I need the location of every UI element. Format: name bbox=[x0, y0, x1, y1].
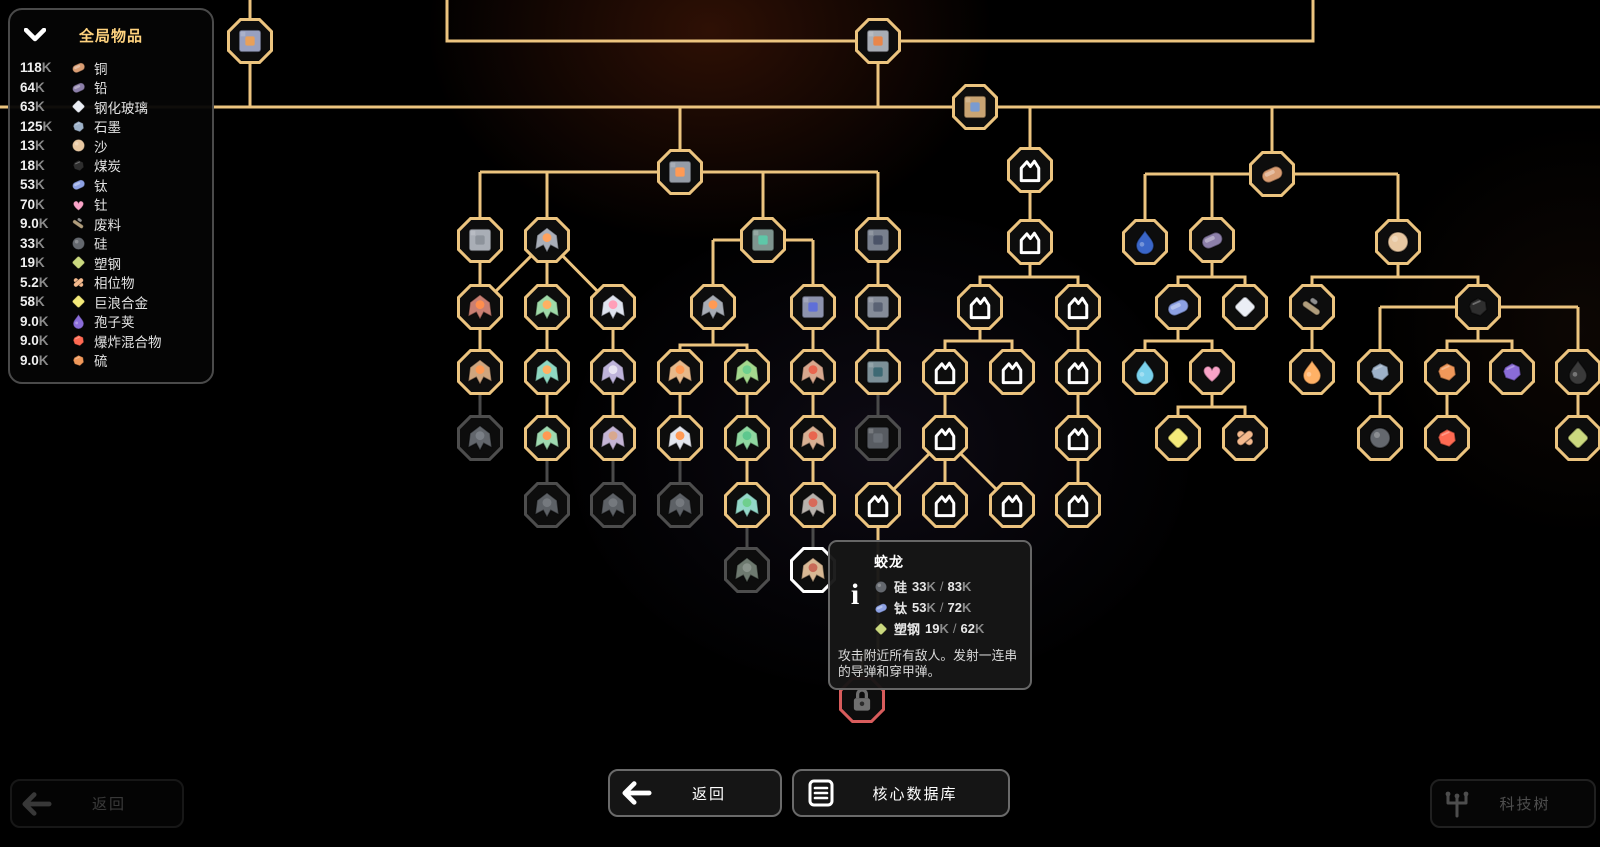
node-icon-block-icon bbox=[793, 287, 833, 327]
tech-node-h4[interactable] bbox=[1055, 482, 1101, 528]
item-amount: 64K bbox=[20, 80, 66, 95]
requirement-circle-icon bbox=[872, 579, 890, 595]
node-icon-item-capsule-icon bbox=[1192, 220, 1232, 260]
tech-tree-icon bbox=[1432, 789, 1482, 819]
node-icon-item-rock-icon bbox=[1427, 418, 1467, 458]
node-icon-sector-icon bbox=[1010, 222, 1050, 262]
item-circle-icon bbox=[68, 137, 88, 154]
item-diamond-icon bbox=[68, 254, 88, 271]
item-name: 钢化玻璃 bbox=[94, 97, 148, 117]
global-items-panel: 全局物品 118K铜64K铅63K钢化玻璃125K石墨13K沙18K煤炭53K钛… bbox=[8, 8, 214, 384]
node-icon-block-icon bbox=[858, 21, 898, 61]
global-item-row: 9.0K孢子荚 bbox=[10, 312, 212, 332]
item-rock-icon bbox=[68, 157, 88, 174]
tech-node-h3[interactable] bbox=[989, 482, 1035, 528]
item-amount: 9.0K bbox=[20, 333, 66, 348]
tech-node-oil[interactable] bbox=[1555, 349, 1600, 395]
tech-node-nova[interactable] bbox=[524, 284, 570, 330]
node-icon-block-icon bbox=[858, 220, 898, 260]
node-icon-item-drop-icon bbox=[1292, 352, 1332, 392]
item-amount: 58K bbox=[20, 294, 66, 309]
tech-node-h6[interactable] bbox=[1007, 219, 1053, 265]
item-capsule-icon bbox=[68, 176, 88, 193]
item-drop-icon bbox=[68, 313, 88, 330]
tech-node-u22[interactable] bbox=[457, 415, 503, 461]
global-item-row: 33K硅 bbox=[10, 234, 212, 254]
node-icon-block-icon bbox=[955, 87, 995, 127]
tech-node-h10[interactable] bbox=[989, 349, 1035, 395]
tech-node-bA[interactable] bbox=[855, 217, 901, 263]
tech-node-metaglass[interactable] bbox=[1222, 284, 1268, 330]
tech-node-bB[interactable] bbox=[855, 284, 901, 330]
item-name: 废料 bbox=[94, 214, 121, 234]
book-list-icon bbox=[794, 779, 848, 807]
tech-node-u33[interactable] bbox=[724, 547, 770, 593]
item-diamond-icon bbox=[68, 293, 88, 310]
node-icon-unit-icon bbox=[527, 418, 567, 458]
item-rock-icon bbox=[68, 332, 88, 349]
tech-node-sand[interactable] bbox=[1375, 219, 1421, 265]
tech-node-plastanium[interactable] bbox=[1555, 415, 1600, 461]
tech-node-h9[interactable] bbox=[922, 349, 968, 395]
tech-node-u26[interactable] bbox=[724, 415, 770, 461]
tooltip-description: 攻击附近所有敌人。发射一连串的导弹和穿甲弹。 bbox=[838, 648, 1022, 680]
item-name: 钍 bbox=[94, 194, 108, 214]
back-button-faded[interactable]: 返回 bbox=[10, 779, 184, 828]
node-icon-item-diamond-icon bbox=[1158, 418, 1198, 458]
item-amount: 13K bbox=[20, 138, 66, 153]
node-icon-item-drop-icon bbox=[1558, 352, 1598, 392]
global-item-row: 70K钍 bbox=[10, 195, 212, 215]
global-item-row: 9.0K爆炸混合物 bbox=[10, 331, 212, 351]
global-item-row: 125K石墨 bbox=[10, 117, 212, 137]
node-icon-sector-icon bbox=[925, 352, 965, 392]
item-weave-icon bbox=[68, 274, 88, 291]
tech-node-mace[interactable] bbox=[457, 284, 503, 330]
node-icon-unit-icon bbox=[793, 550, 833, 590]
node-icon-sector-icon bbox=[1058, 352, 1098, 392]
node-icon-unit-icon bbox=[527, 220, 567, 260]
node-icon-item-heart-icon bbox=[1192, 352, 1232, 392]
node-icon-item-drop-icon bbox=[1125, 352, 1165, 392]
node-icon-sector-icon bbox=[1058, 485, 1098, 525]
tech-node-water[interactable] bbox=[1122, 219, 1168, 265]
requirement-diamond-icon bbox=[872, 621, 890, 637]
item-rock-icon bbox=[68, 118, 88, 135]
node-icon-unit-icon bbox=[460, 287, 500, 327]
node-icon-block-icon bbox=[460, 220, 500, 260]
item-name: 钛 bbox=[94, 175, 108, 195]
item-scrap-icon bbox=[68, 215, 88, 232]
tech-node-af[interactable] bbox=[457, 217, 503, 263]
item-amount: 9.0K bbox=[20, 353, 66, 368]
requirement-name: 塑钢 bbox=[894, 619, 920, 638]
node-icon-unit-icon bbox=[660, 352, 700, 392]
requirement-row: 钛53K/72K bbox=[872, 597, 1022, 618]
tech-node-h12[interactable] bbox=[922, 415, 968, 461]
tech-node-u28[interactable] bbox=[524, 482, 570, 528]
global-item-row: 13K沙 bbox=[10, 136, 212, 156]
tech-node-spore[interactable] bbox=[1489, 349, 1535, 395]
node-icon-block-icon bbox=[743, 220, 783, 260]
item-name: 塑钢 bbox=[94, 253, 121, 273]
tech-node-gf[interactable] bbox=[657, 149, 703, 195]
item-diamond-icon bbox=[68, 98, 88, 115]
tech-node-u23[interactable] bbox=[524, 415, 570, 461]
node-icon-unit-icon bbox=[727, 485, 767, 525]
item-amount: 18K bbox=[20, 158, 66, 173]
item-heart-icon bbox=[68, 196, 88, 213]
tech-node-u24[interactable] bbox=[590, 415, 636, 461]
global-item-row: 118K铜 bbox=[10, 58, 212, 78]
tech-node-bD[interactable] bbox=[855, 415, 901, 461]
item-amount: 9.0K bbox=[20, 314, 66, 329]
tech-node-graphite[interactable] bbox=[1357, 349, 1403, 395]
tooltip-unit-name: 蛟龙 bbox=[874, 552, 1022, 572]
node-icon-unit-icon bbox=[727, 550, 767, 590]
chevron-down-icon[interactable] bbox=[20, 28, 50, 42]
node-icon-sector-icon bbox=[992, 352, 1032, 392]
tech-node-flare[interactable] bbox=[690, 284, 736, 330]
requirement-have: 19K bbox=[925, 621, 949, 636]
item-rock-icon bbox=[68, 352, 88, 369]
node-icon-unit-icon bbox=[727, 352, 767, 392]
item-name: 孢子荚 bbox=[94, 311, 135, 331]
tech-node-coal[interactable] bbox=[1455, 284, 1501, 330]
core-database-button-label: 核心数据库 bbox=[848, 783, 1008, 804]
node-icon-unit-icon bbox=[460, 352, 500, 392]
item-amount: 125K bbox=[20, 119, 66, 134]
tech-node-u21[interactable] bbox=[790, 349, 836, 395]
tech-node-titanium[interactable] bbox=[1155, 284, 1201, 330]
node-icon-unit-icon bbox=[727, 418, 767, 458]
tech-node-thorium[interactable] bbox=[1189, 349, 1235, 395]
tech-node-copper[interactable] bbox=[1249, 151, 1295, 197]
info-icon: i bbox=[838, 550, 872, 639]
requirement-capsule-icon bbox=[872, 600, 890, 616]
node-icon-item-circle-icon bbox=[1378, 222, 1418, 262]
tech-node-u16[interactable] bbox=[457, 349, 503, 395]
requirement-separator: / bbox=[940, 600, 944, 615]
tech-node-cryofluid[interactable] bbox=[1122, 349, 1168, 395]
node-icon-unit-icon bbox=[793, 352, 833, 392]
node-icon-unit-icon bbox=[660, 418, 700, 458]
requirement-name: 钛 bbox=[894, 598, 907, 617]
global-item-row: 9.0K废料 bbox=[10, 214, 212, 234]
item-amount: 63K bbox=[20, 99, 66, 114]
node-icon-unit-icon bbox=[527, 352, 567, 392]
item-name: 铅 bbox=[94, 77, 108, 97]
tech-node-u18[interactable] bbox=[590, 349, 636, 395]
tech-node-B[interactable] bbox=[855, 18, 901, 64]
item-capsule-icon bbox=[68, 59, 88, 76]
tech-node-u30[interactable] bbox=[657, 482, 703, 528]
node-icon-item-diamond-icon bbox=[1558, 418, 1598, 458]
tech-node-u20[interactable] bbox=[724, 349, 770, 395]
node-icon-item-capsule-icon bbox=[1158, 287, 1198, 327]
node-icon-unit-icon bbox=[793, 418, 833, 458]
back-button-faded-label: 返回 bbox=[62, 793, 182, 814]
requirement-need: 72K bbox=[948, 600, 972, 615]
node-icon-sector-icon bbox=[925, 485, 965, 525]
requirement-need: 83K bbox=[948, 579, 972, 594]
requirement-row: 塑钢19K/62K bbox=[872, 618, 1022, 639]
requirement-have: 33K bbox=[912, 579, 936, 594]
node-icon-item-drop-icon bbox=[1125, 222, 1165, 262]
node-icon-item-scrap-icon bbox=[1292, 287, 1332, 327]
node-icon-unit-icon bbox=[527, 485, 567, 525]
node-icon-sector-icon bbox=[925, 418, 965, 458]
node-tooltip: i 蛟龙 硅33K/83K钛53K/72K塑钢19K/62K 攻击附近所有敌人。… bbox=[828, 540, 1032, 690]
tech-tree-button-faded-label: 科技树 bbox=[1482, 793, 1594, 814]
node-icon-block-icon bbox=[858, 352, 898, 392]
node-icon-block-icon bbox=[660, 152, 700, 192]
node-icon-sector-icon bbox=[960, 287, 1000, 327]
item-name: 相位物 bbox=[94, 272, 135, 292]
tech-node-phase[interactable] bbox=[1222, 415, 1268, 461]
node-icon-block-icon bbox=[230, 21, 270, 61]
global-item-row: 5.2K相位物 bbox=[10, 273, 212, 293]
tech-node-pyratite[interactable] bbox=[1424, 349, 1470, 395]
item-name: 煤炭 bbox=[94, 155, 121, 175]
back-button-label: 返回 bbox=[664, 783, 780, 804]
arrow-left-icon bbox=[610, 780, 664, 806]
tech-node-h13[interactable] bbox=[1055, 415, 1101, 461]
global-item-row: 63K钢化玻璃 bbox=[10, 97, 212, 117]
item-capsule-icon bbox=[68, 79, 88, 96]
node-icon-unit-icon bbox=[460, 418, 500, 458]
node-icon-item-diamond-icon bbox=[1225, 287, 1265, 327]
item-amount: 33K bbox=[20, 236, 66, 251]
requirement-name: 硅 bbox=[894, 577, 907, 596]
tech-node-blast[interactable] bbox=[1424, 415, 1470, 461]
item-name: 硅 bbox=[94, 233, 108, 253]
tech-node-h1[interactable] bbox=[855, 482, 901, 528]
tech-node-dagger[interactable] bbox=[524, 217, 570, 263]
node-icon-item-rock-icon bbox=[1360, 352, 1400, 392]
tech-node-C[interactable] bbox=[952, 84, 998, 130]
node-icon-unit-icon bbox=[593, 485, 633, 525]
node-icon-unit-icon bbox=[660, 485, 700, 525]
tech-node-u29[interactable] bbox=[590, 482, 636, 528]
requirement-separator: / bbox=[953, 621, 957, 636]
tech-node-u31[interactable] bbox=[724, 482, 770, 528]
tech-node-u17[interactable] bbox=[524, 349, 570, 395]
global-item-row: 18K煤炭 bbox=[10, 156, 212, 176]
node-icon-unit-icon bbox=[527, 287, 567, 327]
node-icon-item-rock-icon bbox=[1492, 352, 1532, 392]
requirement-separator: / bbox=[940, 579, 944, 594]
tech-node-nf[interactable] bbox=[740, 217, 786, 263]
tech-node-h5[interactable] bbox=[1007, 147, 1053, 193]
node-icon-sector-icon bbox=[1058, 418, 1098, 458]
node-icon-item-weave-icon bbox=[1225, 418, 1265, 458]
node-icon-item-capsule-icon bbox=[1252, 154, 1292, 194]
global-item-row: 53K钛 bbox=[10, 175, 212, 195]
node-icon-item-circle-icon bbox=[1360, 418, 1400, 458]
item-name: 沙 bbox=[94, 136, 108, 156]
item-circle-icon bbox=[68, 235, 88, 252]
node-icon-sector-icon bbox=[1010, 150, 1050, 190]
core-database-button[interactable]: 核心数据库 bbox=[792, 769, 1010, 817]
item-name: 石墨 bbox=[94, 116, 121, 136]
tech-node-lead[interactable] bbox=[1189, 217, 1235, 263]
item-name: 巨浪合金 bbox=[94, 292, 148, 312]
node-icon-unit-icon bbox=[693, 287, 733, 327]
node-icon-unit-icon bbox=[793, 485, 833, 525]
item-name: 硫 bbox=[94, 350, 108, 370]
item-amount: 5.2K bbox=[20, 275, 66, 290]
global-items-header[interactable]: 全局物品 bbox=[10, 20, 212, 50]
node-icon-unit-icon bbox=[593, 287, 633, 327]
tech-node-crawler[interactable] bbox=[590, 284, 636, 330]
arrow-left-icon bbox=[12, 791, 62, 817]
tooltip-requirements: 硅33K/83K钛53K/72K塑钢19K/62K bbox=[872, 576, 1022, 639]
item-amount: 19K bbox=[20, 255, 66, 270]
global-item-row: 58K巨浪合金 bbox=[10, 292, 212, 312]
back-button[interactable]: 返回 bbox=[608, 769, 782, 817]
tech-tree-button-faded[interactable]: 科技树 bbox=[1430, 779, 1596, 828]
tech-node-h7[interactable] bbox=[957, 284, 1003, 330]
tech-node-bC[interactable] bbox=[855, 349, 901, 395]
node-icon-block-icon bbox=[858, 287, 898, 327]
node-icon-sector-icon bbox=[992, 485, 1032, 525]
tech-node-u25[interactable] bbox=[657, 415, 703, 461]
tech-node-surge[interactable] bbox=[1155, 415, 1201, 461]
node-icon-unit-icon bbox=[593, 418, 633, 458]
node-icon-item-rock-icon bbox=[1458, 287, 1498, 327]
tech-node-h8[interactable] bbox=[1055, 284, 1101, 330]
global-items-list: 118K铜64K铅63K钢化玻璃125K石墨13K沙18K煤炭53K钛70K钍9… bbox=[10, 58, 212, 370]
global-item-row: 9.0K硫 bbox=[10, 351, 212, 371]
tech-node-silicon[interactable] bbox=[1357, 415, 1403, 461]
requirement-need: 62K bbox=[961, 621, 985, 636]
item-amount: 9.0K bbox=[20, 216, 66, 231]
requirement-row: 硅33K/83K bbox=[872, 576, 1022, 597]
item-name: 爆炸混合物 bbox=[94, 331, 162, 351]
node-icon-block-icon bbox=[858, 418, 898, 458]
node-icon-unit-icon bbox=[593, 352, 633, 392]
node-icon-sector-icon bbox=[1058, 287, 1098, 327]
tech-node-h2[interactable] bbox=[922, 482, 968, 528]
global-item-row: 64K铅 bbox=[10, 78, 212, 98]
tech-node-u27[interactable] bbox=[790, 415, 836, 461]
tech-node-u32[interactable] bbox=[790, 482, 836, 528]
global-item-row: 19K塑钢 bbox=[10, 253, 212, 273]
tech-node-h11[interactable] bbox=[1055, 349, 1101, 395]
tech-node-u19[interactable] bbox=[657, 349, 703, 395]
item-amount: 70K bbox=[20, 197, 66, 212]
item-amount: 53K bbox=[20, 177, 66, 192]
node-icon-sector-icon bbox=[858, 485, 898, 525]
tech-node-rc2[interactable] bbox=[790, 284, 836, 330]
tech-node-slag[interactable] bbox=[1289, 349, 1335, 395]
tech-node-A[interactable] bbox=[227, 18, 273, 64]
item-name: 铜 bbox=[94, 58, 108, 78]
node-icon-item-rock-icon bbox=[1427, 352, 1467, 392]
panel-title: 全局物品 bbox=[50, 25, 172, 46]
item-amount: 118K bbox=[20, 60, 66, 75]
requirement-have: 53K bbox=[912, 600, 936, 615]
tech-node-scrap[interactable] bbox=[1289, 284, 1335, 330]
